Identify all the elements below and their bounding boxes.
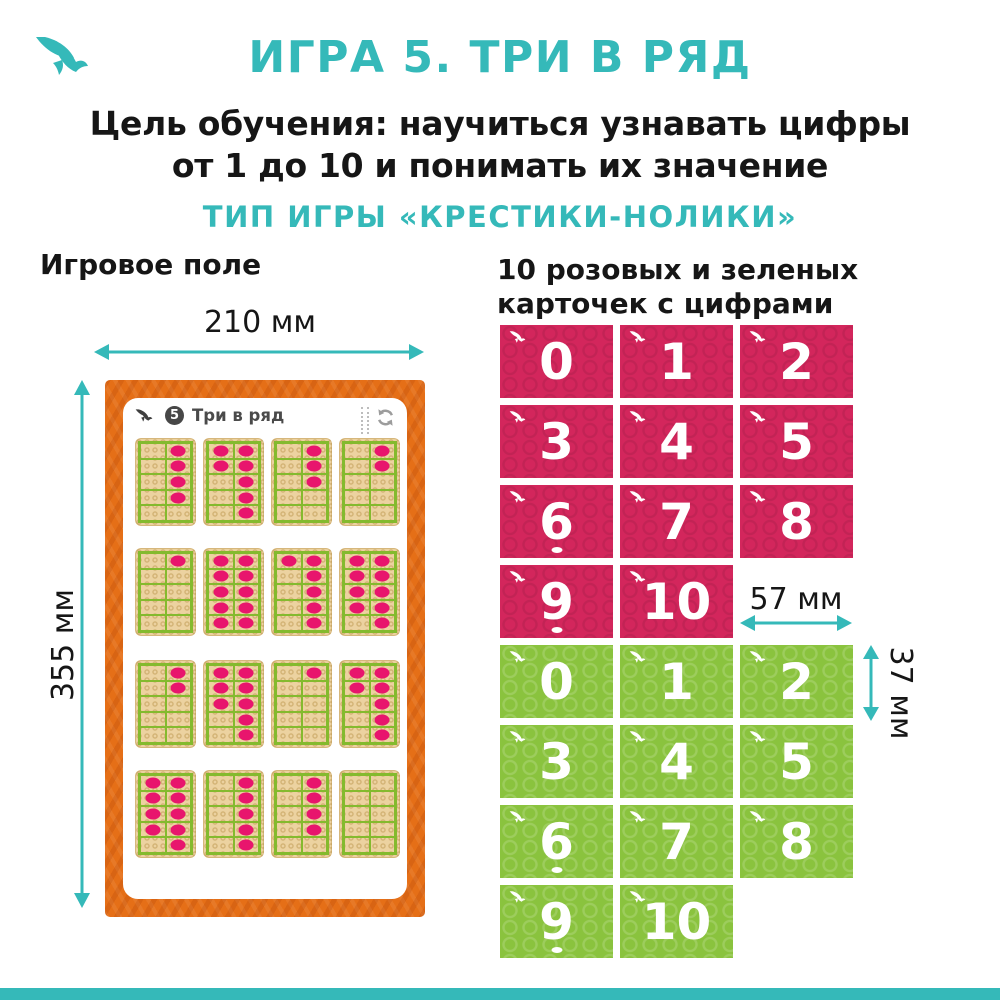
pink-number-card-6: 6 [500,485,613,558]
ten-frame-cell [140,712,166,728]
pink-number-card-10: 10 [620,565,733,638]
counting-dot [239,587,254,598]
counting-dot [375,602,390,613]
card-bird-icon [629,651,646,663]
ten-frame-cell [208,791,234,807]
card-number: 10 [642,577,712,627]
counting-dot [239,571,254,582]
counting-dot [239,809,254,820]
card-bird-icon [509,731,526,743]
ten-frame-grid [342,663,397,745]
ten-frame-cell [140,443,166,459]
ten-frame-cell [140,490,166,506]
ten-frame-cell [344,822,370,838]
ten-frame-card-7 [339,660,400,748]
green-cards-grid: 012345678910 [500,645,853,958]
ten-frame-card-2 [135,660,196,748]
ten-frame-cell [276,505,302,521]
card-number: 0 [539,657,574,707]
ten-frame-card-3 [271,438,332,526]
ten-frame-cell [302,681,328,697]
card-number: 1 [659,337,694,387]
counting-dot [349,555,364,566]
ten-frame-card-2 [339,438,400,526]
ten-frame-card-6 [271,548,332,636]
counting-dot [239,699,254,710]
counting-dot [171,777,186,788]
ten-frame-cell [344,775,370,791]
ten-frame-grid [206,551,261,633]
ten-frame-cell [166,569,192,585]
ten-frame-cell [140,600,166,616]
ten-frame-cell [166,615,192,631]
refresh-icon [374,406,397,429]
ten-frame-grid [342,441,397,523]
ten-frame-cell [302,837,328,853]
learning-goal-line2: от 1 до 10 и понимать их значение [0,148,1000,184]
ten-frame-card-0 [339,770,400,858]
counting-dot [213,461,228,472]
infographic-page: ИГРА 5. ТРИ В РЯД Цель обучения: научить… [0,0,1000,1000]
counting-dot [375,587,390,598]
ten-frame-cell [344,615,370,631]
ten-frame-cell [344,474,370,490]
ten-frame-cell [344,505,370,521]
counting-dot [349,602,364,613]
cards-heading-line1: 10 розовых и зеленых [497,255,858,286]
counting-dot [239,618,254,629]
card-bird-icon [509,891,526,903]
ten-frame-cell [344,459,370,475]
ten-frame-cell [370,505,396,521]
counting-dot [239,824,254,835]
ten-frame-cell [344,712,370,728]
card-bird-icon [629,411,646,423]
board-bird-icon [135,409,153,422]
ten-frame-grid [274,663,329,745]
board-number-badge: 5 [165,406,184,425]
ten-frame-cell [276,791,302,807]
counting-dot [375,445,390,456]
counting-dot [375,618,390,629]
ten-frame-grid [206,441,261,523]
counting-dot [213,683,228,694]
counting-dot [239,730,254,741]
ten-frame-cell [276,837,302,853]
ten-frame-cell [302,712,328,728]
ten-frame-cell [302,696,328,712]
ten-frame-cell [208,837,234,853]
footer-accent-bar [0,988,1000,1000]
counting-dot [239,840,254,851]
ten-frame-card-9 [339,548,400,636]
ten-frame-cell [208,727,234,743]
card-bird-icon [629,331,646,343]
ten-frame-cell [140,505,166,521]
card-number: 8 [779,817,814,867]
counting-dot [171,793,186,804]
green-number-card-0: 0 [500,645,613,718]
counting-dot [307,602,322,613]
green-number-card-10: 10 [620,885,733,958]
counting-dot [145,809,160,820]
ten-frame-cell [302,490,328,506]
counting-dot [213,602,228,613]
ten-frame-cell [166,696,192,712]
counting-dot [307,461,322,472]
counting-dot [213,445,228,456]
orientation-mark [551,547,562,553]
counting-dot [239,445,254,456]
ten-frame-cell [276,443,302,459]
counting-dot [171,683,186,694]
counting-dot [307,618,322,629]
ten-frame-cell [208,505,234,521]
card-bird-icon [629,571,646,583]
card-bird-icon [509,811,526,823]
ten-frame-grid [138,663,193,745]
green-number-card-1: 1 [620,645,733,718]
ten-frame-card-4 [271,770,332,858]
board-panel: 5 Три в ряд [123,398,407,899]
card-number: 4 [659,417,694,467]
card-bird-icon [629,811,646,823]
card-bird-icon [749,731,766,743]
ten-frame-card-9 [135,770,196,858]
green-number-card-4: 4 [620,725,733,798]
counting-dot [375,730,390,741]
card-number: 4 [659,737,694,787]
ten-frame-cell [370,806,396,822]
ten-frame-grid [274,551,329,633]
counting-dot [307,777,322,788]
counting-dot [213,618,228,629]
card-number: 6 [539,817,574,867]
ten-frame-cell [276,775,302,791]
card-bird-icon [629,891,646,903]
ten-frame-cell [344,806,370,822]
card-bird-icon [749,411,766,423]
counting-dot [375,699,390,710]
ten-frame-cell [370,474,396,490]
ten-frame-card-1 [271,660,332,748]
counting-dot [239,508,254,519]
ten-frame-cell [276,665,302,681]
counting-dot [239,461,254,472]
pink-number-card-8: 8 [740,485,853,558]
ten-frame-cell [166,600,192,616]
counting-dot [145,824,160,835]
green-number-card-8: 8 [740,805,853,878]
card-number: 7 [659,497,694,547]
pink-number-card-5: 5 [740,405,853,478]
ten-frame-cell [208,712,234,728]
counting-dot [239,667,254,678]
orientation-mark [551,947,562,953]
card-number: 2 [779,337,814,387]
ten-frame-cell [140,584,166,600]
counting-dot [239,714,254,725]
ten-frame-grid [138,441,193,523]
counting-dot [213,699,228,710]
ten-frame-cell [276,727,302,743]
counting-dot [171,492,186,503]
counting-dot [349,571,364,582]
board-height-label: 355 мм [47,545,81,745]
game-board: 5 Три в ряд [105,380,425,917]
card-bird-icon [509,651,526,663]
orientation-mark [551,627,562,633]
card-bird-icon [749,491,766,503]
ten-frame-grid [274,441,329,523]
board-section-heading: Игровое поле [40,250,261,281]
counting-dot [213,555,228,566]
ten-frame-cell [166,712,192,728]
counting-dot [213,571,228,582]
ten-frame-cell [166,584,192,600]
ten-frame-cell [140,569,166,585]
pink-number-card-9: 9 [500,565,613,638]
ten-frame-grid [206,663,261,745]
counting-dot [171,840,186,851]
pink-number-card-7: 7 [620,485,733,558]
counting-dot [171,477,186,488]
ten-frame-cell [276,822,302,838]
counting-dot [239,477,254,488]
card-bird-icon [509,331,526,343]
card-bird-icon [749,811,766,823]
card-number: 1 [659,657,694,707]
ten-frame-cell [344,443,370,459]
ten-frame-cell [276,459,302,475]
ten-frame-card-10 [203,548,264,636]
card-bird-icon [629,731,646,743]
counting-dot [171,445,186,456]
counting-dot [307,571,322,582]
counting-dot [213,667,228,678]
counting-dot [349,587,364,598]
ten-frame-grid [342,773,397,855]
card-height-arrow [860,644,882,722]
pink-number-card-1: 1 [620,325,733,398]
card-number: 5 [779,737,814,787]
counting-dot [239,683,254,694]
counting-dot [171,809,186,820]
counting-dot [307,793,322,804]
ten-frame-cell [140,474,166,490]
pink-number-card-0: 0 [500,325,613,398]
counting-dot [375,461,390,472]
counting-dot [375,555,390,566]
ten-frame-cell [140,837,166,853]
counting-dot [375,683,390,694]
ten-frame-cell [166,505,192,521]
card-number: 9 [539,897,574,947]
card-number: 8 [779,497,814,547]
card-bird-icon [509,411,526,423]
counting-dot [171,667,186,678]
ten-frame-cell [208,822,234,838]
counting-dot [307,445,322,456]
ten-frame-card-8 [203,660,264,748]
card-bird-icon [749,651,766,663]
ten-frame-grid [138,773,193,855]
ten-frame-cell [302,505,328,521]
card-number: 0 [539,337,574,387]
counting-dot [213,587,228,598]
ten-frame-cell [370,775,396,791]
card-bird-icon [749,331,766,343]
green-number-card-7: 7 [620,805,733,878]
counting-dot [307,667,322,678]
ten-frame-cell [276,569,302,585]
card-number: 5 [779,417,814,467]
orientation-mark [551,867,562,873]
counting-dot [375,667,390,678]
ten-frame-cell [276,584,302,600]
ten-frame-cell [370,490,396,506]
card-bird-icon [629,491,646,503]
ten-frame-cell [140,553,166,569]
counting-dot [171,555,186,566]
vertical-caption-marks [361,407,369,434]
ten-frame-cell [140,665,166,681]
ten-frame-cell [344,490,370,506]
card-bird-icon [509,571,526,583]
page-title: ИГРА 5. ТРИ В РЯД [0,34,1000,82]
counting-dot [239,555,254,566]
ten-frame-cell [344,791,370,807]
counting-dot [145,777,160,788]
ten-frame-cell [140,727,166,743]
ten-frame-grid [342,551,397,633]
ten-frame-cell [208,775,234,791]
counting-dot [239,492,254,503]
card-number: 7 [659,817,694,867]
ten-frame-cell [276,615,302,631]
counting-dot [239,777,254,788]
game-type-subtitle: ТИП ИГРЫ «КРЕСТИКИ-НОЛИКИ» [0,202,1000,234]
pink-number-card-3: 3 [500,405,613,478]
learning-goal-line1: Цель обучения: научиться узнавать цифры [0,106,1000,142]
ten-frame-cell [208,806,234,822]
counting-dot [307,824,322,835]
card-number: 10 [642,897,712,947]
ten-frame-grid [138,551,193,633]
counting-dot [375,714,390,725]
green-number-card-2: 2 [740,645,853,718]
counting-dot [307,477,322,488]
green-number-card-5: 5 [740,725,853,798]
ten-frame-card-7 [203,438,264,526]
counting-dot [171,461,186,472]
ten-frame-card-1 [135,548,196,636]
ten-frame-cell [276,681,302,697]
ten-frame-cell [140,459,166,475]
card-number: 2 [779,657,814,707]
ten-frame-grid [206,773,261,855]
pink-number-card-2: 2 [740,325,853,398]
ten-frame-cell [140,615,166,631]
card-number: 3 [539,417,574,467]
card-number: 3 [539,737,574,787]
green-number-card-6: 6 [500,805,613,878]
card-number: 6 [539,497,574,547]
ten-frame-cell [276,696,302,712]
ten-frame-cell [276,490,302,506]
card-height-label: 37 мм [883,638,917,748]
ten-frame-cell [276,474,302,490]
board-width-label: 210 мм [95,306,425,339]
card-width-arrow [739,612,853,634]
ten-frame-grid [274,773,329,855]
counting-dot [239,602,254,613]
ten-frame-cell [370,791,396,807]
ten-frame-card-4 [135,438,196,526]
counting-dot [349,683,364,694]
ten-frame-cell [276,712,302,728]
ten-frame-card-5 [203,770,264,858]
ten-frame-cell [344,837,370,853]
cards-heading-line2: карточек с цифрами [497,289,833,320]
ten-frame-cell [370,837,396,853]
ten-frame-cell [344,727,370,743]
ten-frame-cell [208,474,234,490]
card-number: 9 [539,577,574,627]
counting-dot [307,809,322,820]
board-title: Три в ряд [192,407,284,425]
counting-dot [145,793,160,804]
counting-dot [307,587,322,598]
ten-frame-cell [140,681,166,697]
green-number-card-3: 3 [500,725,613,798]
board-width-arrow [93,341,425,363]
ten-frame-cell [140,696,166,712]
ten-frame-cell [370,822,396,838]
pink-number-card-4: 4 [620,405,733,478]
ten-frame-cell [344,696,370,712]
card-bird-icon [509,491,526,503]
counting-dot [281,555,296,566]
counting-dot [171,824,186,835]
ten-frame-cell [276,806,302,822]
counting-dot [349,667,364,678]
counting-dot [307,555,322,566]
ten-frame-cell [302,727,328,743]
counting-dot [239,793,254,804]
green-number-card-9: 9 [500,885,613,958]
ten-frame-cell [276,600,302,616]
ten-frame-cell [166,727,192,743]
counting-dot [375,571,390,582]
ten-frame-cell [208,490,234,506]
